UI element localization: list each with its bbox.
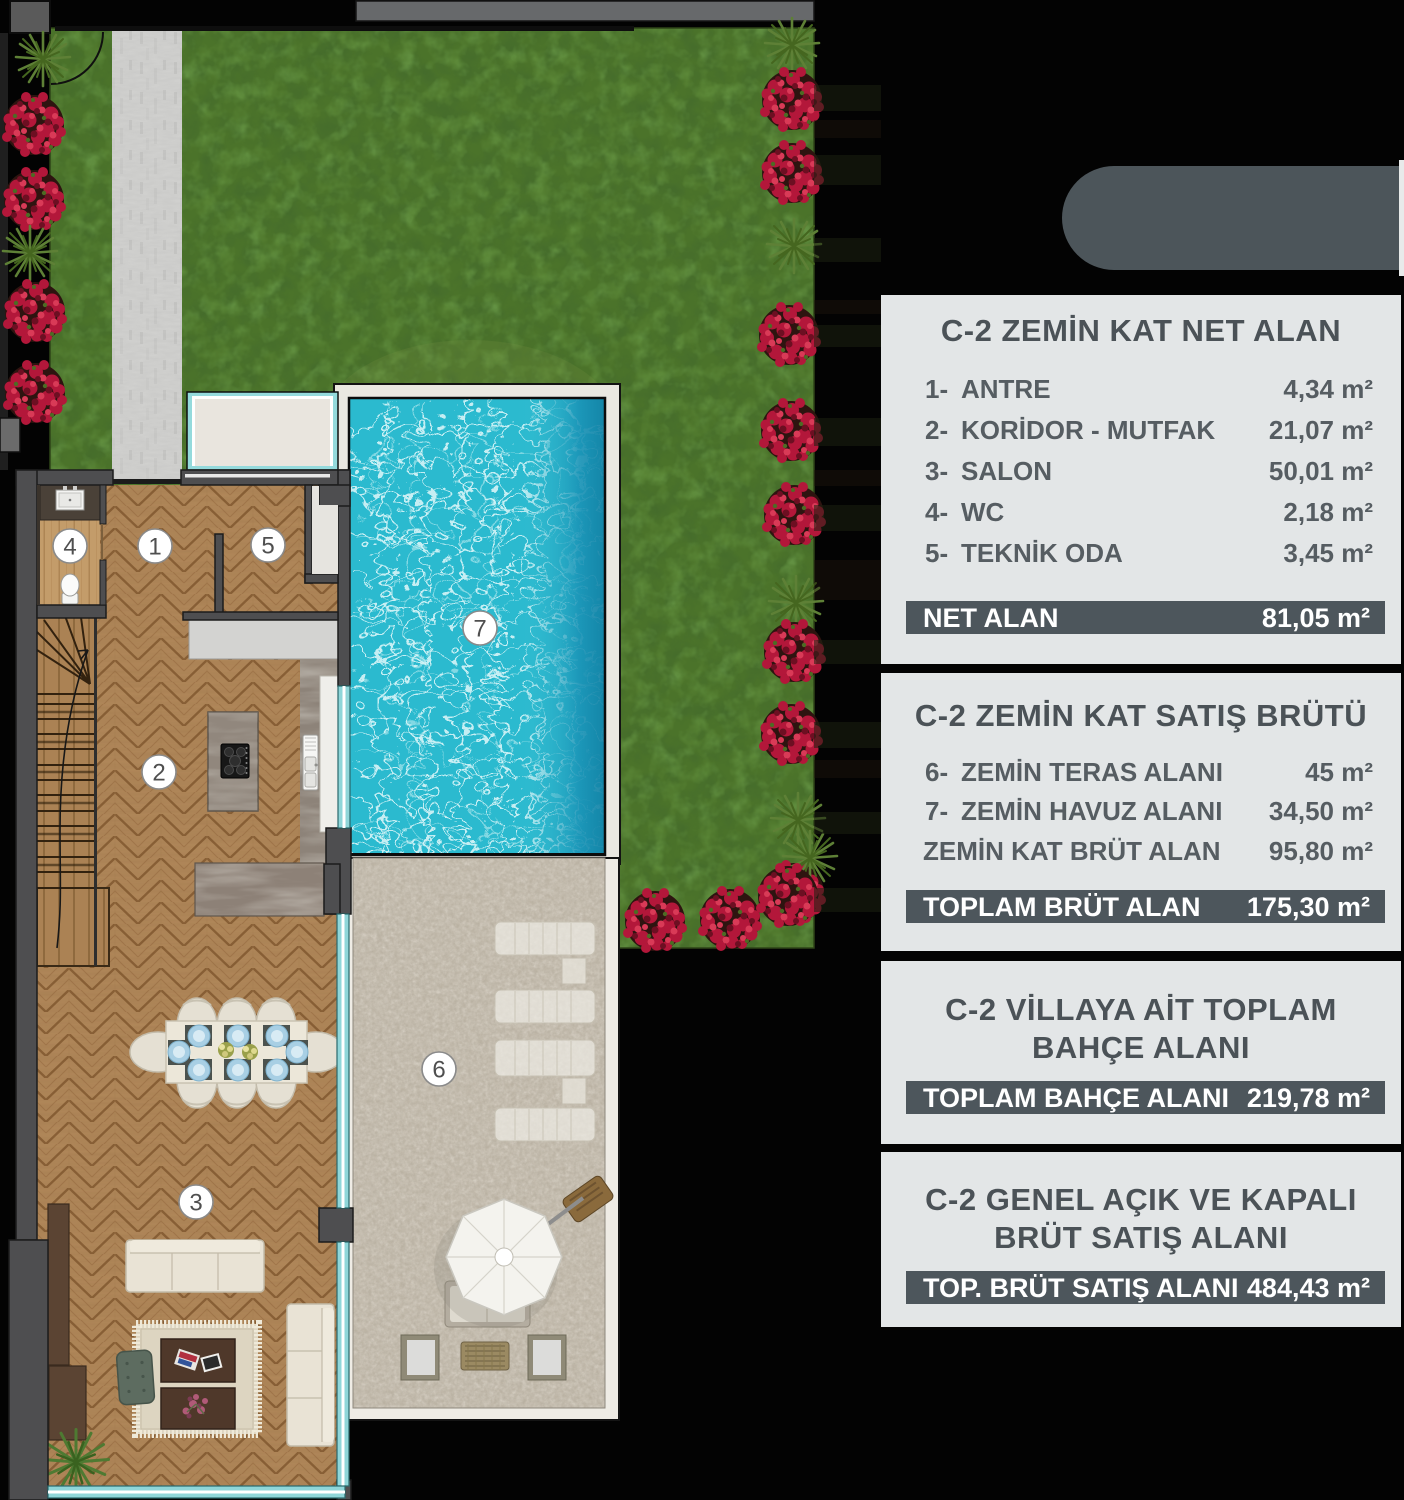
svg-text:4: 4 (63, 534, 76, 561)
svg-text:1: 1 (148, 534, 161, 561)
svg-text:7: 7 (473, 616, 486, 643)
svg-text:6: 6 (432, 1057, 445, 1084)
svg-text:3: 3 (189, 1190, 202, 1217)
svg-text:5: 5 (261, 533, 274, 560)
svg-text:2: 2 (152, 760, 165, 787)
